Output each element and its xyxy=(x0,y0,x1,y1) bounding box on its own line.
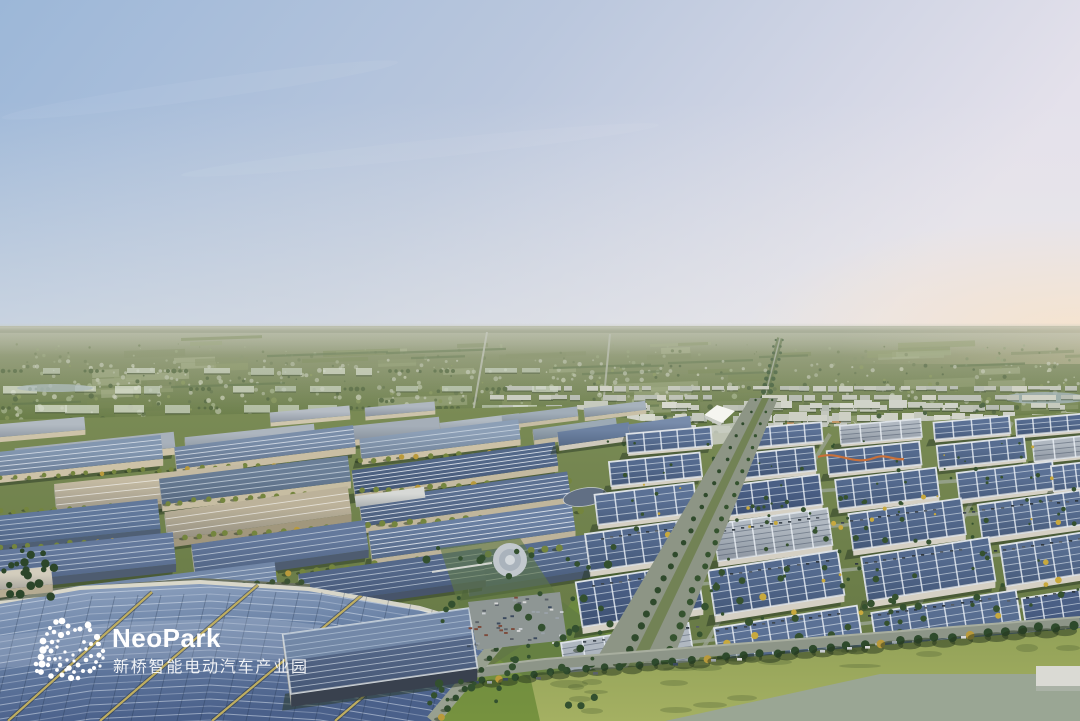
svg-text:NeoPark: NeoPark xyxy=(112,623,221,653)
svg-text:新桥智能电动汽车产业园: 新桥智能电动汽车产业园 xyxy=(113,658,309,676)
